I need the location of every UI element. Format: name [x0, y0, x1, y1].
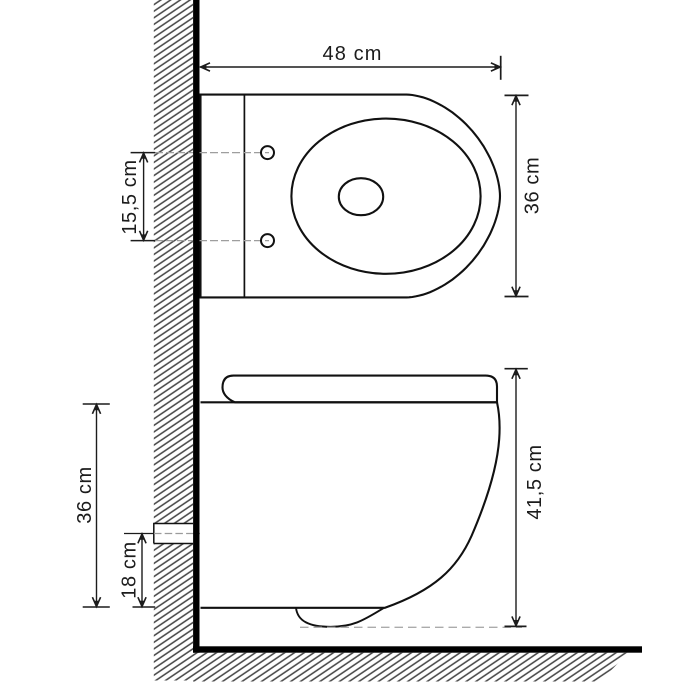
svg-text:36 cm: 36 cm: [522, 157, 544, 214]
svg-text:36 cm: 36 cm: [74, 466, 96, 523]
svg-text:41,5 cm: 41,5 cm: [524, 444, 546, 519]
svg-text:48 cm: 48 cm: [323, 43, 383, 65]
svg-text:15,5 cm: 15,5 cm: [119, 159, 141, 234]
svg-text:18 cm: 18 cm: [119, 541, 141, 598]
